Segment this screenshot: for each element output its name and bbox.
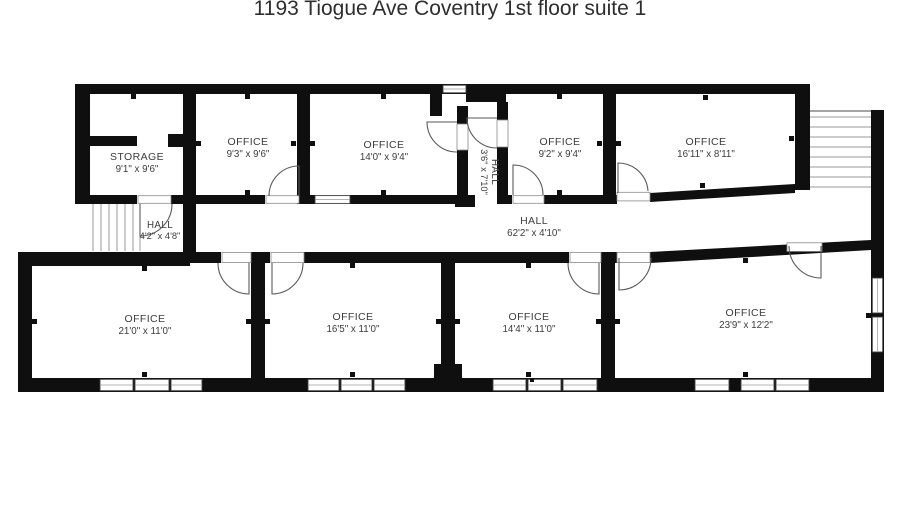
room-name: OFFICE xyxy=(509,311,550,323)
room-dims: 9'3" x 9'6" xyxy=(227,149,270,160)
room-label-office-165: OFFICE 16'5" x 11'0" xyxy=(326,311,380,335)
room-dims: 21'0" x 11'0" xyxy=(118,326,172,337)
room-name: HALL xyxy=(520,215,548,227)
floor-plan: 1193 Tiogue Ave Coventry 1st floor suite… xyxy=(0,0,900,529)
room-dims: 4'2" x 4'8" xyxy=(140,231,181,241)
room-dims: 14'4" x 11'0" xyxy=(502,324,556,335)
room-name: OFFICE xyxy=(364,139,405,151)
room-dims: 9'2" x 9'4" xyxy=(539,149,582,160)
room-dims: 3'6" x 7'10" xyxy=(479,149,489,195)
room-label-office-239: OFFICE 23'9" x 12'2" xyxy=(719,307,773,331)
room-label-hall-42: HALL 4'2" x 4'8" xyxy=(140,220,181,241)
room-label-office-93: OFFICE 9'3" x 9'6" xyxy=(227,136,270,160)
room-dims: 62'2" x 4'10" xyxy=(507,228,561,239)
room-label-storage: STORAGE 9'1" x 9'6" xyxy=(110,151,164,175)
room-dims: 16'11" x 8'11" xyxy=(677,149,735,160)
floor-plan-page: 1193 Tiogue Ave Coventry 1st floor suite… xyxy=(0,0,900,529)
room-label-hall-622: HALL 62'2" x 4'10" xyxy=(507,215,561,239)
windows xyxy=(100,85,883,391)
room-name: HALL xyxy=(147,220,173,231)
page-title: 1193 Tiogue Ave Coventry 1st floor suite… xyxy=(254,0,647,20)
door-office-165 xyxy=(272,263,303,294)
room-label-office-210: OFFICE 21'0" x 11'0" xyxy=(118,313,172,337)
room-name: OFFICE xyxy=(726,307,767,319)
room-name: OFFICE xyxy=(228,136,269,148)
door-office-93 xyxy=(269,166,299,196)
exterior-stairs xyxy=(810,111,871,187)
room-name: OFFICE xyxy=(540,136,581,148)
room-dims: 14'0" x 9'4" xyxy=(360,152,409,163)
door-office-144 xyxy=(568,263,599,294)
room-label-office-140: OFFICE 14'0" x 9'4" xyxy=(360,139,409,163)
room-name: HALL xyxy=(489,159,500,185)
door-office-140 xyxy=(427,122,457,152)
room-name: STORAGE xyxy=(110,151,164,163)
room-dims: 23'9" x 12'2" xyxy=(719,320,773,331)
room-name: OFFICE xyxy=(125,313,166,325)
door-office-1611 xyxy=(618,163,648,193)
room-label-office-144: OFFICE 14'4" x 11'0" xyxy=(502,311,556,335)
door-office-92 xyxy=(513,165,543,195)
room-dims: 9'1" x 9'6" xyxy=(116,164,159,175)
room-label-hall-36: HALL 3'6" x 7'10" xyxy=(479,149,500,195)
interior-stairs xyxy=(93,204,140,251)
room-label-office-1611: OFFICE 16'11" x 8'11" xyxy=(677,136,735,160)
door-hall-36 xyxy=(467,118,497,148)
room-name: OFFICE xyxy=(686,136,727,148)
room-label-office-92: OFFICE 9'2" x 9'4" xyxy=(539,136,582,160)
room-dims: 16'5" x 11'0" xyxy=(326,324,380,335)
door-office-210 xyxy=(218,263,249,294)
room-name: OFFICE xyxy=(333,311,374,323)
